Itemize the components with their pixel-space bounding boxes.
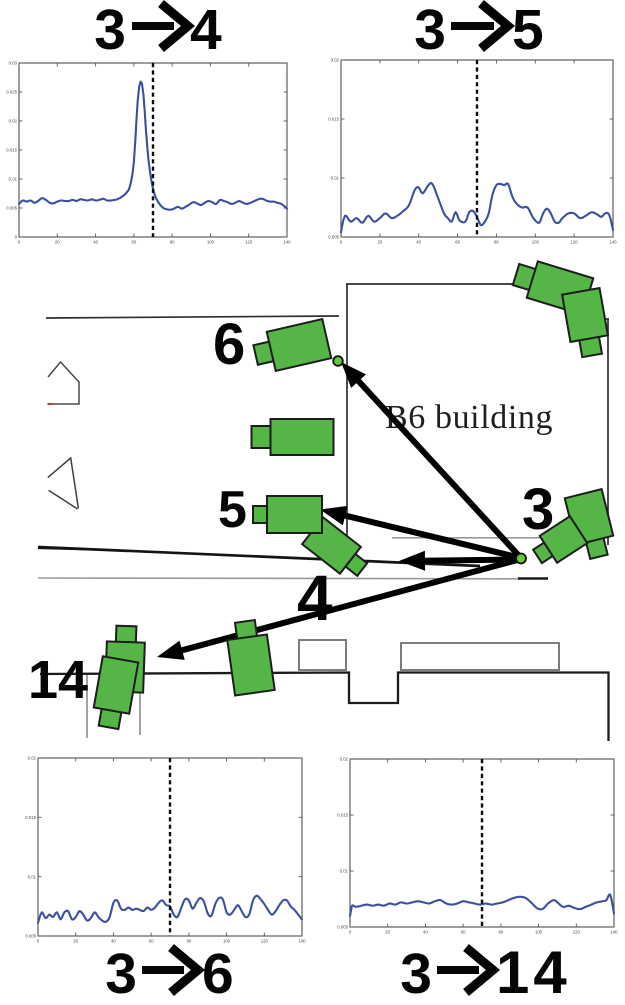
svg-text:14: 14 xyxy=(496,939,571,1000)
svg-text:80: 80 xyxy=(499,930,504,935)
svg-text:4: 4 xyxy=(297,562,333,634)
svg-text:3: 3 xyxy=(414,0,446,62)
svg-text:0.03: 0.03 xyxy=(9,61,18,66)
svg-text:0.02: 0.02 xyxy=(331,58,340,63)
svg-text:120: 120 xyxy=(571,240,579,245)
svg-text:100: 100 xyxy=(535,930,543,935)
svg-text:60: 60 xyxy=(455,240,460,245)
svg-text:80: 80 xyxy=(494,240,499,245)
svg-text:100: 100 xyxy=(207,240,215,245)
svg-text:20: 20 xyxy=(378,240,383,245)
svg-text:40: 40 xyxy=(423,930,428,935)
svg-text:0.02: 0.02 xyxy=(340,757,349,762)
svg-text:80: 80 xyxy=(187,939,192,944)
svg-text:120: 120 xyxy=(573,930,581,935)
svg-text:0.015: 0.015 xyxy=(337,813,348,818)
svg-text:0.005: 0.005 xyxy=(337,925,348,930)
svg-text:3: 3 xyxy=(400,942,432,1000)
svg-text:60: 60 xyxy=(461,930,466,935)
svg-text:6: 6 xyxy=(213,312,245,377)
svg-text:3: 3 xyxy=(94,0,126,62)
svg-text:60: 60 xyxy=(149,939,154,944)
svg-text:0.01: 0.01 xyxy=(28,874,37,879)
svg-text:60: 60 xyxy=(132,240,137,245)
svg-text:5: 5 xyxy=(218,481,247,539)
svg-text:6: 6 xyxy=(202,942,234,1000)
svg-text:0.01: 0.01 xyxy=(331,176,340,181)
svg-text:0.015: 0.015 xyxy=(328,117,339,122)
svg-text:0.005: 0.005 xyxy=(6,206,17,211)
svg-text:20: 20 xyxy=(385,930,390,935)
svg-text:80: 80 xyxy=(170,240,175,245)
svg-text:0.02: 0.02 xyxy=(9,119,18,124)
svg-text:120: 120 xyxy=(261,939,269,944)
svg-text:0.015: 0.015 xyxy=(6,148,17,153)
svg-text:120: 120 xyxy=(245,240,253,245)
svg-text:0.01: 0.01 xyxy=(9,177,18,182)
svg-text:0.025: 0.025 xyxy=(6,90,17,95)
svg-text:100: 100 xyxy=(532,240,540,245)
svg-text:40: 40 xyxy=(416,240,421,245)
svg-text:4: 4 xyxy=(190,0,222,62)
svg-text:0.02: 0.02 xyxy=(28,756,37,761)
svg-text:140: 140 xyxy=(283,240,291,245)
svg-text:0.01: 0.01 xyxy=(340,869,349,874)
svg-text:0.015: 0.015 xyxy=(25,815,36,820)
svg-text:B6 building: B6 building xyxy=(385,399,553,436)
svg-text:140: 140 xyxy=(610,930,618,935)
svg-text:0.005: 0.005 xyxy=(25,934,36,939)
svg-text:5: 5 xyxy=(512,0,544,62)
svg-text:140: 140 xyxy=(609,240,617,245)
svg-text:20: 20 xyxy=(55,240,60,245)
svg-text:0.005: 0.005 xyxy=(328,235,339,240)
svg-text:140: 140 xyxy=(298,939,306,944)
svg-text:40: 40 xyxy=(93,240,98,245)
svg-text:20: 20 xyxy=(73,939,78,944)
svg-text:3: 3 xyxy=(105,942,137,1000)
svg-text:14: 14 xyxy=(28,650,88,710)
svg-text:3: 3 xyxy=(522,477,554,542)
